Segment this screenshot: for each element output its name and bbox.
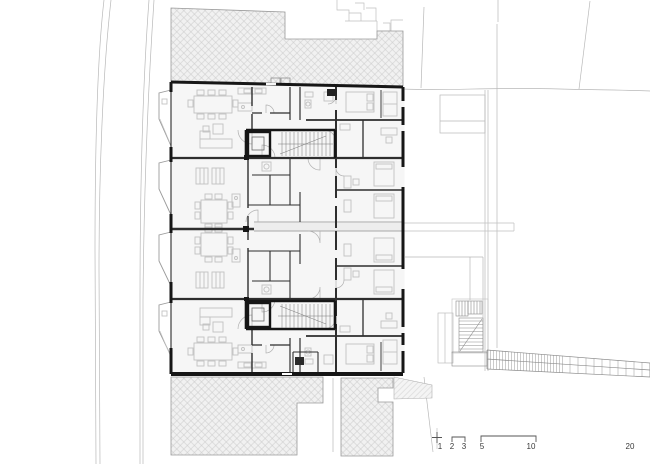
hatched-strip-small [394, 377, 432, 399]
neighbor-building-outlines [337, 0, 403, 31]
building-plan [159, 78, 514, 374]
hatched-area-bottom-left [171, 377, 323, 455]
floor-plan-drawing: 1 2 3 5 10 20 [0, 0, 650, 464]
scale-label-3: 3 [462, 442, 466, 451]
balcony-bays [159, 90, 171, 356]
scale-label-5: 5 [480, 442, 484, 451]
scale-label-1: 1 [438, 442, 442, 451]
scale-label-10: 10 [527, 442, 536, 451]
hatched-area-bottom-right [341, 377, 432, 456]
hatched-area-top [171, 8, 403, 86]
floor-plan-svg [0, 0, 650, 464]
central-terrace-band [254, 222, 514, 231]
scale-label-20: 20 [626, 442, 635, 451]
scale-label-2: 2 [450, 442, 454, 451]
external-ramp [487, 350, 650, 377]
external-stairs [438, 299, 488, 366]
